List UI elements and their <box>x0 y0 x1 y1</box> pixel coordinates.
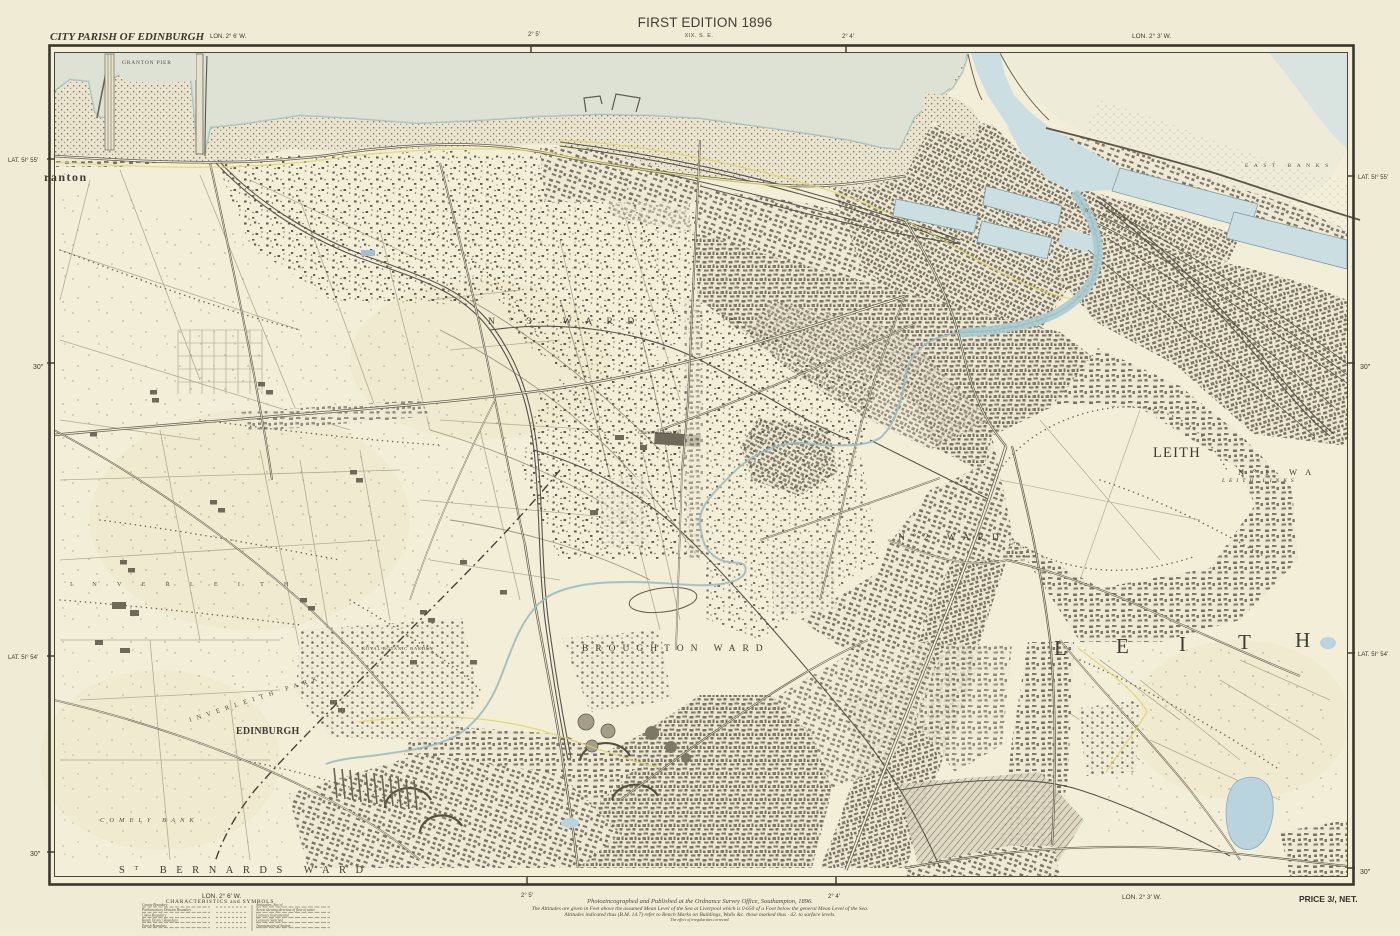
svg-text:Nº1 WA: Nº1 WA <box>1238 467 1320 477</box>
svg-text:Arrow shewing direction of flo: Arrow shewing direction of flow of water <box>255 908 316 912</box>
svg-text:30″: 30″ <box>30 851 41 858</box>
svg-text:COMELY BANK: COMELY BANK <box>100 817 199 824</box>
svg-text:L: L <box>1054 636 1067 660</box>
svg-text:The effect of irregularities c: The effect of irregularities corrected. <box>670 917 729 922</box>
svg-text:Burgh District Boundary: Burgh District Boundary <box>142 919 178 923</box>
svg-text:EDINBURGH: EDINBURGH <box>236 726 299 737</box>
svg-text:CITY PARISH OF EDINBURGH: CITY PARISH OF EDINBURGH <box>50 31 205 43</box>
svg-text:ROYAL BOTANIC GARDEN: ROYAL BOTANIC GARDEN <box>362 646 433 651</box>
svg-text:2° 4′: 2° 4′ <box>828 894 841 900</box>
svg-text:Chancelot Flour Mill: Chancelot Flour Mill <box>638 431 681 436</box>
svg-text:2° 5′: 2° 5′ <box>521 893 534 899</box>
svg-text:LAT. 5I° 54′: LAT. 5I° 54′ <box>1358 652 1389 658</box>
svg-text:Contours Instrumental: Contours Instrumental <box>256 913 289 917</box>
svg-text:LON. 2° 6′ W.: LON. 2° 6′ W. <box>210 34 247 40</box>
svg-text:2° 4′: 2° 4′ <box>842 34 855 40</box>
svg-text:PRICE 3/, NET.: PRICE 3/, NET. <box>1299 894 1358 904</box>
svg-text:30″: 30″ <box>1360 364 1371 371</box>
svg-text:LEITH LINKS: LEITH LINKS <box>1221 478 1298 484</box>
svg-text:30″: 30″ <box>1360 869 1371 876</box>
svg-text:County Boundary: County Boundary <box>142 903 168 907</box>
svg-text:BROUGHTON WARD: BROUGHTON WARD <box>582 644 770 654</box>
svg-text:LAT. 5I° 54′: LAT. 5I° 54′ <box>8 655 39 661</box>
svg-text:Parish Boundary: Parish Boundary <box>141 924 167 928</box>
svg-text:2° 5′: 2° 5′ <box>528 32 541 38</box>
svg-text:E: E <box>1116 634 1129 658</box>
svg-text:I: I <box>1179 632 1186 656</box>
svg-text:Parliamentary Division Boundar: Parliamentary Division Boundary <box>141 908 192 912</box>
svg-text:Union Boundary: Union Boundary <box>142 913 166 917</box>
svg-text:Nº2 WARD: Nº2 WARD <box>898 533 1007 543</box>
svg-text:30″: 30″ <box>33 364 44 371</box>
svg-text:Nº3 WARD: Nº3 WARD <box>488 317 649 327</box>
svg-text:The Altitudes are given in Fee: The Altitudes are given in Feet above th… <box>532 905 869 912</box>
svg-text:T: T <box>1238 630 1251 654</box>
svg-text:LON. 2° 3′ W.: LON. 2° 3′ W. <box>1132 32 1171 40</box>
svg-text:INVERLEITH: INVERLEITH <box>70 581 309 588</box>
svg-text:LON. 2° 3′ W.: LON. 2° 3′ W. <box>1122 893 1161 901</box>
svg-text:Contours Sketched: Contours Sketched <box>256 919 283 923</box>
svg-text:Trigonometrical Station: Trigonometrical Station <box>256 924 291 928</box>
svg-text:FIRST EDITION 1896: FIRST EDITION 1896 <box>638 15 773 30</box>
svg-text:LEITH: LEITH <box>1153 445 1201 461</box>
svg-text:EAST BANKS: EAST BANKS <box>1245 163 1334 169</box>
svg-text:LAT. 5I° 55′: LAT. 5I° 55′ <box>1358 175 1389 181</box>
svg-text:H: H <box>1295 628 1310 652</box>
svg-text:Sᵀ BERNARDS WARD: Sᵀ BERNARDS WARD <box>119 865 373 876</box>
svg-text:XIX. S. E.: XIX. S. E. <box>685 33 714 39</box>
svg-text:LAT. 5I° 55′: LAT. 5I° 55′ <box>8 158 39 164</box>
svg-text:Photozincographed and Publishe: Photozincographed and Published at the O… <box>586 898 813 905</box>
svg-text:GRANTON PIER: GRANTON PIER <box>122 60 172 66</box>
